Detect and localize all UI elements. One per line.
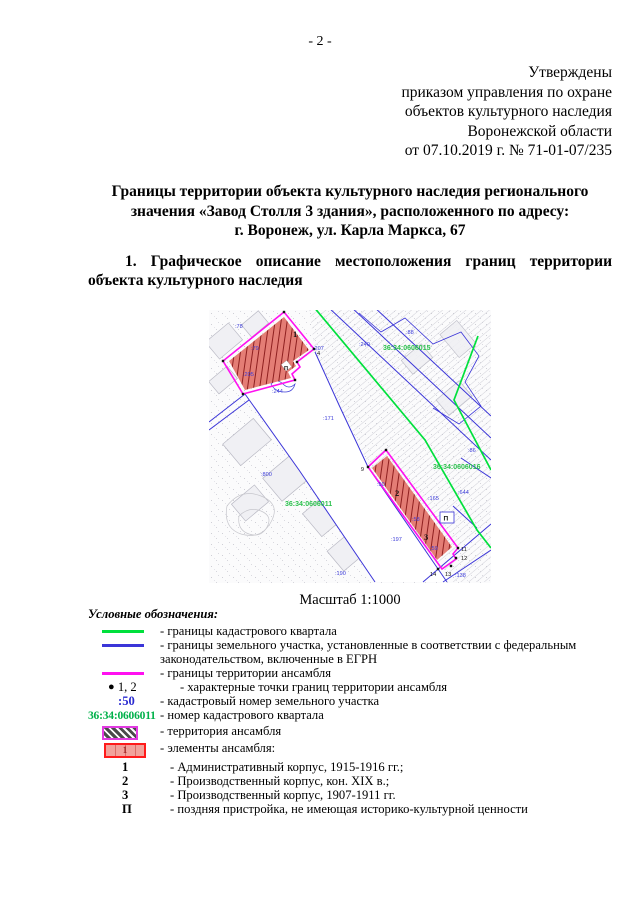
- svg-text::59: :59: [430, 546, 438, 552]
- title-line: значения «Завод Столля 3 здания», распол…: [88, 202, 612, 222]
- legend-label: - Административный корпус, 1915-1916 гг.…: [160, 761, 618, 774]
- legend-heading: Условные обозначения:: [88, 608, 618, 621]
- parcel-number-sample: :50: [118, 694, 135, 708]
- svg-text::171: :171: [323, 416, 334, 422]
- quarter-number-sample: 36:34:0606011: [88, 710, 156, 722]
- svg-text:13: 13: [445, 572, 451, 578]
- svg-text::50: :50: [377, 482, 385, 488]
- svg-text:36:34:0606011: 36:34:0606011: [285, 501, 332, 508]
- svg-text:3: 3: [424, 532, 428, 542]
- element-number: 3: [122, 788, 128, 802]
- legend-label: - характерные точки границ территории ан…: [180, 681, 618, 694]
- legend-label: - Производственный корпус, кон. XIX в.;: [160, 775, 618, 788]
- blue-line-swatch: [102, 644, 144, 647]
- legend-item-element-1: 1 - Административный корпус, 1915-1916 г…: [88, 761, 618, 774]
- svg-text::207: :207: [313, 346, 324, 352]
- svg-text:9: 9: [361, 467, 364, 473]
- svg-text::190: :190: [335, 571, 346, 577]
- document-page: - 2 - Утверждены приказом управления по …: [0, 0, 640, 905]
- cadastral-map: П П 4 9 11 12 13 14 1: [209, 310, 491, 583]
- approval-line: Утверждены: [401, 63, 612, 83]
- legend-label: - Производственный корпус, 1907-1911 гг.: [160, 789, 618, 802]
- svg-text:12: 12: [461, 556, 467, 562]
- svg-text::58: :58: [412, 517, 420, 523]
- approval-line: приказом управления по охране: [401, 83, 612, 103]
- svg-text::79: :79: [251, 346, 259, 352]
- legend-item-element-annex: П - поздняя пристройка, не имеющая истор…: [88, 803, 618, 816]
- svg-text::78: :78: [235, 324, 243, 330]
- legend-label: - границы кадастрового квартала: [160, 625, 618, 638]
- legend-label: - поздняя пристройка, не имеющая историк…: [160, 803, 618, 816]
- annex-1-label: П: [284, 366, 288, 372]
- element-number: 1: [122, 760, 128, 774]
- legend-item-quarter-boundary: - границы кадастрового квартала: [88, 625, 618, 638]
- legend: Условные обозначения: - границы кадастро…: [88, 608, 618, 817]
- legend-item-parcel-number: :50 - кадастровый номер земельного участ…: [88, 695, 618, 708]
- legend-item-ensemble-elements: 1 - элементы ансамбля:: [88, 742, 618, 760]
- title-line: г. Воронеж, ул. Карла Маркса, 67: [88, 221, 612, 241]
- red-swatch: 1: [104, 743, 146, 758]
- map-scale-label: Масштаб 1:1000: [209, 592, 491, 609]
- green-line-swatch: [102, 630, 144, 633]
- legend-label: - границы земельного участка, установлен…: [160, 639, 618, 665]
- page-number: - 2 -: [0, 34, 640, 50]
- annex-2-label: П: [444, 516, 449, 523]
- legend-item-ensemble-territory: - территория ансамбля: [88, 725, 618, 741]
- svg-text::644: :644: [458, 490, 469, 496]
- cadastral-map-drawing: П П 4 9 11 12 13 14 1: [209, 310, 491, 583]
- legend-item-quarter-number: 36:34:0606011 - номер кадастрового кварт…: [88, 709, 618, 723]
- legend-label: - территория ансамбля: [160, 725, 618, 738]
- svg-text:1: 1: [293, 329, 297, 339]
- legend-item-element-3: 3 - Производственный корпус, 1907-1911 г…: [88, 789, 618, 802]
- svg-text::88: :88: [406, 330, 414, 336]
- svg-text::197: :197: [391, 537, 402, 543]
- section-1-line2: объекта культурного наследия: [88, 271, 612, 290]
- legend-item-parcel-boundary: - границы земельного участка, установлен…: [88, 639, 618, 665]
- point-dot-icon: ●: [108, 681, 115, 693]
- legend-item-element-2: 2 - Производственный корпус, кон. XIX в.…: [88, 775, 618, 788]
- svg-text::165: :165: [428, 496, 439, 502]
- magenta-line-swatch: [102, 672, 144, 675]
- approval-line: от 07.10.2019 г. № 71-01-07/235: [401, 141, 612, 161]
- svg-text::138: :138: [455, 573, 466, 579]
- legend-item-ensemble-boundary: - границы территории ансамбля: [88, 667, 618, 680]
- svg-text:36:34:0606015: 36:34:0606015: [383, 345, 431, 352]
- svg-text::86: :86: [468, 448, 476, 454]
- legend-label: - элементы ансамбля:: [160, 742, 618, 755]
- legend-label: - номер кадастрового квартала: [160, 709, 618, 722]
- svg-text::205: :205: [243, 372, 254, 378]
- element-number: 2: [122, 774, 128, 788]
- svg-text:2: 2: [395, 488, 399, 498]
- point-numbers-sample: 1, 2: [118, 680, 137, 694]
- hatch-swatch: [102, 726, 138, 740]
- legend-label: - кадастровый номер земельного участка: [160, 695, 618, 708]
- svg-text:14: 14: [430, 572, 436, 578]
- svg-text::244: :244: [272, 389, 283, 395]
- approval-block: Утверждены приказом управления по охране…: [401, 63, 612, 161]
- svg-text:11: 11: [461, 547, 467, 553]
- svg-text::240: :240: [359, 342, 370, 348]
- svg-text:36:34:0606016: 36:34:0606016: [433, 464, 481, 471]
- approval-line: Воронежской области: [401, 122, 612, 142]
- element-number: П: [122, 802, 132, 816]
- svg-text::800: :800: [261, 472, 272, 478]
- legend-item-boundary-points: ● 1, 2 - характерные точки границ террит…: [88, 681, 618, 694]
- approval-line: объектов культурного наследия: [401, 102, 612, 122]
- section-1-line1: 1. Графическое описание местоположения г…: [88, 252, 612, 271]
- title-line: Границы территории объекта культурного н…: [88, 182, 612, 202]
- section-1-heading: 1. Графическое описание местоположения г…: [88, 252, 612, 290]
- document-title: Границы территории объекта культурного н…: [88, 182, 612, 241]
- legend-label: - границы территории ансамбля: [160, 667, 618, 680]
